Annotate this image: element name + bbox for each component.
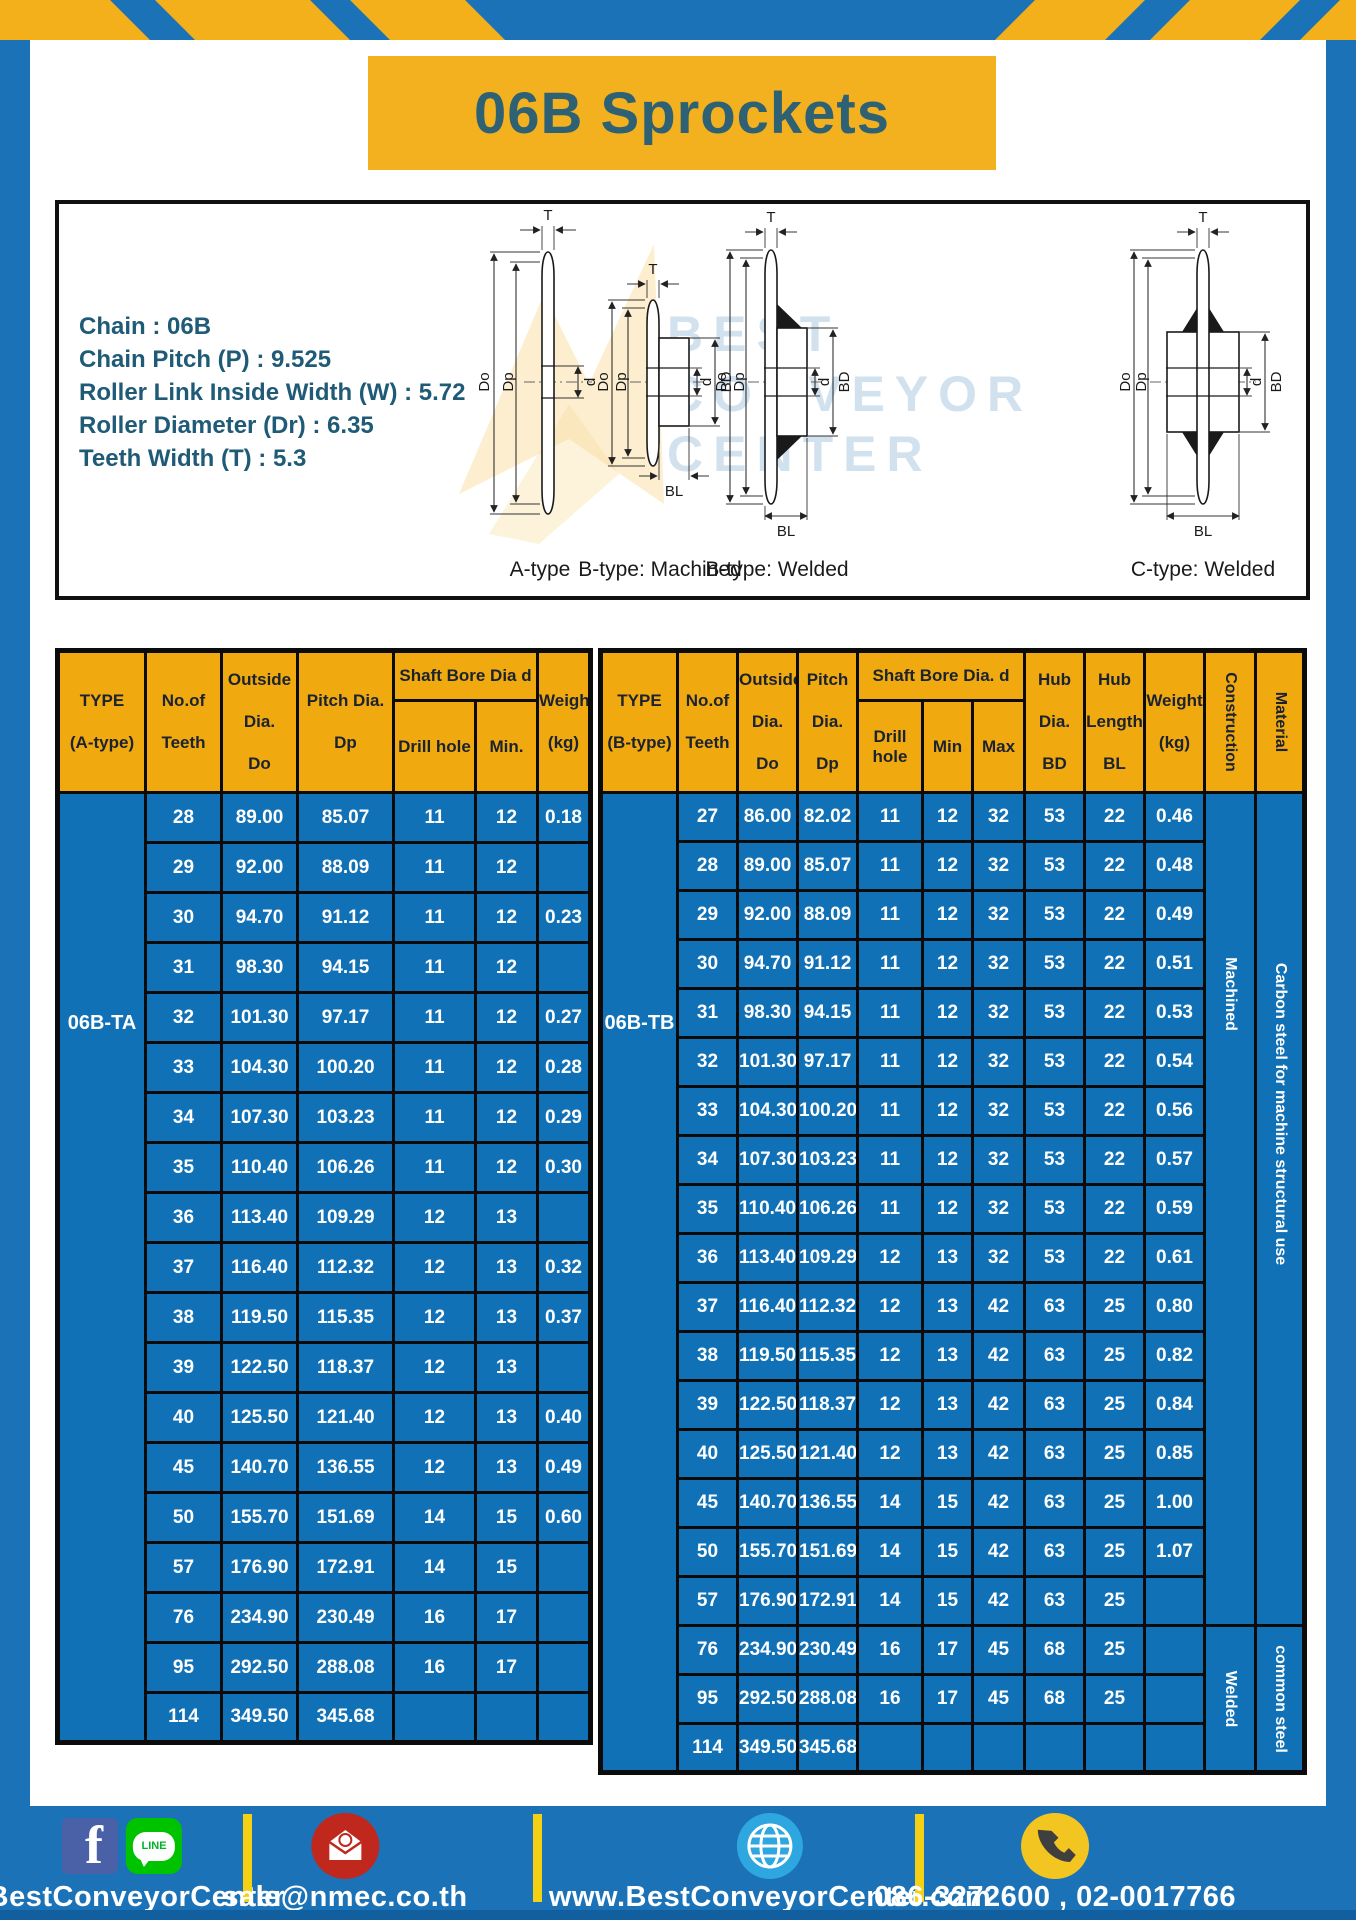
table-cell: 11 [858, 1185, 923, 1234]
table-row: 114349.50345.68 [601, 1724, 1305, 1773]
table-cell: 119.50 [222, 1293, 298, 1343]
table-cell: 25 [1085, 1626, 1145, 1675]
table-cell: 113.40 [222, 1193, 298, 1243]
table-cell: 16 [394, 1643, 476, 1693]
table-cell: 12 [923, 793, 973, 842]
table-cell: 12 [858, 1381, 923, 1430]
table-cell: 53 [1025, 842, 1085, 891]
table-row: 3094.7091.1211123253220.51 [601, 940, 1305, 989]
table-cell: 13 [476, 1343, 538, 1393]
table-cell: 14 [394, 1543, 476, 1593]
table-cell: 76 [678, 1626, 738, 1675]
table-cell: 22 [1085, 1234, 1145, 1283]
table-cell: 13 [923, 1332, 973, 1381]
table-cell: 172.91 [298, 1543, 394, 1593]
dim-label-d: d [1248, 378, 1265, 386]
table-row: 3198.3094.1511123253220.53 [601, 989, 1305, 1038]
table-cell: 12 [858, 1283, 923, 1332]
table-cell: 25 [1085, 1577, 1145, 1626]
table-row: 76234.90230.491617456825Weldedcommon ste… [601, 1626, 1305, 1675]
table-row: 06B-TB2786.0082.0211123253220.46Machined… [601, 793, 1305, 842]
table-cell: 12 [923, 1038, 973, 1087]
table-row: 38119.50115.3512134263250.82 [601, 1332, 1305, 1381]
table-cell: 12 [858, 1234, 923, 1283]
facebook-icon[interactable]: f [62, 1818, 118, 1874]
table-cell: 53 [1025, 989, 1085, 1038]
spec-line: Roller Diameter (Dr) : 6.35 [79, 409, 465, 442]
sprocket-drawings: Do Dp d T A-type [440, 204, 1302, 592]
dim-label-bl: BL [1194, 523, 1212, 540]
table-cell: 42 [973, 1381, 1025, 1430]
table-cell: 106.26 [298, 1143, 394, 1193]
table-row: 33104.30100.2011123253220.56 [601, 1087, 1305, 1136]
dim-label-do: Do [1117, 372, 1134, 391]
table-row: 2992.0088.0911123253220.49 [601, 891, 1305, 940]
table-cell: 349.50 [222, 1693, 298, 1743]
table-row: 40125.50121.4012134263250.85 [601, 1430, 1305, 1479]
table-cell: 116.40 [738, 1283, 798, 1332]
email-icon[interactable] [309, 1812, 381, 1880]
table-cell: 37 [146, 1243, 222, 1293]
table-cell: 32 [973, 1087, 1025, 1136]
table-cell: 140.70 [222, 1443, 298, 1493]
table-cell: 14 [394, 1493, 476, 1543]
table-cell: 13 [476, 1293, 538, 1343]
table-cell: 45 [678, 1479, 738, 1528]
table-cell: 42 [973, 1332, 1025, 1381]
table-cell: 16 [858, 1675, 923, 1724]
footer-bottom-strip [0, 1910, 1356, 1920]
table-cell: 0.49 [1145, 891, 1205, 940]
drawing-b-type-machined: Do Dp d BD T BL B-type: Ma [578, 261, 741, 581]
table-cell: 11 [858, 940, 923, 989]
table-cell: 176.90 [222, 1543, 298, 1593]
table-cell: 32 [973, 891, 1025, 940]
table-cell: 15 [923, 1479, 973, 1528]
table-cell [538, 1593, 591, 1643]
construction-cell: Welded [1205, 1626, 1256, 1773]
table-cell: 11 [394, 893, 476, 943]
table-cell: 30 [678, 940, 738, 989]
table-cell: 103.23 [798, 1136, 858, 1185]
table-cell: 292.50 [738, 1675, 798, 1724]
table-cell: 155.70 [738, 1528, 798, 1577]
table-cell [923, 1724, 973, 1773]
table-cell: 53 [1025, 891, 1085, 940]
b-type-table: TYPE (B-type) No.of Teeth Outside Dia. D… [598, 648, 1307, 1775]
dim-label-do: Do [713, 372, 730, 391]
table-cell: 15 [923, 1577, 973, 1626]
table-cell: 32 [973, 1234, 1025, 1283]
table-cell: 106.26 [798, 1185, 858, 1234]
page: 06B Sprockets BEST CONVEYOR CENTER Chain… [0, 0, 1356, 1920]
table-cell: 11 [394, 793, 476, 843]
table-cell: 0.82 [1145, 1332, 1205, 1381]
table-cell: 11 [394, 1143, 476, 1193]
table-cell: 0.40 [538, 1393, 591, 1443]
table-cell: 98.30 [738, 989, 798, 1038]
table-cell: 91.12 [298, 893, 394, 943]
table-cell: 114 [146, 1693, 222, 1743]
drawing-b-type-welded: Do Dp d BD T BL B-type: Welded [705, 209, 853, 581]
table-cell: 63 [1025, 1528, 1085, 1577]
table-cell: 12 [394, 1243, 476, 1293]
table-cell: 100.20 [298, 1043, 394, 1093]
table-cell: 151.69 [798, 1528, 858, 1577]
dim-label-t: T [648, 261, 657, 278]
table-cell: 34 [678, 1136, 738, 1185]
table-cell [858, 1724, 923, 1773]
table-cell: 11 [858, 989, 923, 1038]
table-cell: 109.29 [798, 1234, 858, 1283]
table-cell: 11 [394, 1043, 476, 1093]
table-cell: 57 [678, 1577, 738, 1626]
col-header-shaft-bore-group: Shaft Bore Dia. d [858, 651, 1025, 701]
table-cell: 0.32 [538, 1243, 591, 1293]
table-cell: 140.70 [738, 1479, 798, 1528]
table-row: 36113.40109.2912133253220.61 [601, 1234, 1305, 1283]
table-cell [538, 1193, 591, 1243]
dim-label-dp: Dp [731, 372, 748, 391]
spec-line: Chain Pitch (P) : 9.525 [79, 343, 465, 376]
table-cell: 12 [858, 1332, 923, 1381]
table-cell [538, 1693, 591, 1743]
table-row: 34107.30103.2311123253220.57 [601, 1136, 1305, 1185]
table-cell: 12 [476, 993, 538, 1043]
table-cell: 0.29 [538, 1093, 591, 1143]
drawing-c-type-welded: Do Dp d BD T BL C-type: Welded [1117, 209, 1285, 581]
a-type-table: TYPE (A-type) No.of Teeth Outside Dia. D… [55, 648, 593, 1745]
dim-label-bd: BD [1268, 371, 1285, 392]
table-cell: 17 [923, 1675, 973, 1724]
footer-divider [533, 1814, 542, 1902]
dim-label-dp: Dp [1133, 372, 1150, 391]
table-cell: 63 [1025, 1283, 1085, 1332]
table-cell [538, 1643, 591, 1693]
table-cell: 12 [476, 1143, 538, 1193]
col-header-shaft-bore-group: Shaft Bore Dia d [394, 651, 538, 701]
table-cell: 50 [146, 1493, 222, 1543]
footer: f LINE @BestConveyorCenter sale@nmec.co.… [0, 1806, 1356, 1920]
phone-icon[interactable] [1019, 1812, 1091, 1880]
table-cell: 95 [146, 1643, 222, 1693]
table-cell: 14 [858, 1479, 923, 1528]
table-row: 95292.50288.081617456825 [601, 1675, 1305, 1724]
table-cell: 11 [858, 842, 923, 891]
table-cell: 0.80 [1145, 1283, 1205, 1332]
table-cell: 17 [923, 1626, 973, 1675]
table-cell: 63 [1025, 1479, 1085, 1528]
table-cell: 12 [476, 943, 538, 993]
col-header-outside-dia: Outside Dia. Do [738, 651, 798, 793]
table-cell: 42 [973, 1577, 1025, 1626]
table-cell: 25 [1085, 1528, 1145, 1577]
table-cell: 13 [476, 1193, 538, 1243]
table-cell: 0.51 [1145, 940, 1205, 989]
table-cell [1145, 1675, 1205, 1724]
table-row: 57176.90172.911415426325 [601, 1577, 1305, 1626]
table-cell: 36 [678, 1234, 738, 1283]
table-cell: 82.02 [798, 793, 858, 842]
table-cell [538, 843, 591, 893]
table-cell: 13 [923, 1381, 973, 1430]
table-cell: 22 [1085, 989, 1145, 1038]
table-cell: 176.90 [738, 1577, 798, 1626]
table-cell: 34 [146, 1093, 222, 1143]
table-cell: 12 [394, 1343, 476, 1393]
dim-label-dp: Dp [613, 372, 630, 391]
table-cell: 16 [858, 1626, 923, 1675]
top-decoration-bar [0, 0, 1356, 40]
table-cell: 97.17 [298, 993, 394, 1043]
figure-caption: A-type [510, 558, 571, 581]
footer-phone-section[interactable]: 086-3272600 , 02-0017766 [874, 1812, 1236, 1914]
line-icon[interactable]: LINE [126, 1818, 182, 1874]
table-cell: 38 [678, 1332, 738, 1381]
dim-label-dp: Dp [500, 372, 517, 391]
table-cell: 22 [1085, 1038, 1145, 1087]
footer-email-section[interactable]: sale@nmec.co.th [222, 1812, 467, 1914]
table-cell: 0.54 [1145, 1038, 1205, 1087]
table-cell: 172.91 [798, 1577, 858, 1626]
table-cell: 42 [973, 1479, 1025, 1528]
b-type-table-body: 06B-TB2786.0082.0211123253220.46Machined… [601, 793, 1305, 1773]
table-cell: 11 [858, 891, 923, 940]
table-cell: 104.30 [222, 1043, 298, 1093]
stripe-decoration [155, 0, 350, 40]
table-cell: 89.00 [222, 793, 298, 843]
table-cell: 94.15 [798, 989, 858, 1038]
col-header-min: Min. [476, 701, 538, 793]
table-cell: 28 [146, 793, 222, 843]
table-cell: 42 [973, 1283, 1025, 1332]
table-cell: 11 [858, 1136, 923, 1185]
table-cell: 151.69 [298, 1493, 394, 1543]
page-title: 06B Sprockets [474, 80, 890, 147]
table-cell: 107.30 [222, 1093, 298, 1143]
table-cell: 121.40 [798, 1430, 858, 1479]
spec-line: Chain : 06B [79, 310, 465, 343]
table-cell: 288.08 [798, 1675, 858, 1724]
table-cell: 76 [146, 1593, 222, 1643]
table-cell [476, 1693, 538, 1743]
drawing-a-type: Do Dp d T A-type [476, 207, 599, 581]
table-cell: 53 [1025, 1234, 1085, 1283]
construction-cell: Machined [1205, 793, 1256, 1626]
table-cell: 53 [1025, 1185, 1085, 1234]
table-cell: 68 [1025, 1675, 1085, 1724]
spec-panel: BEST CONVEYOR CENTER Chain : 06B Chain P… [55, 200, 1310, 600]
a-type-table-body: 06B-TA2889.0085.0711120.182992.0088.0911… [58, 793, 591, 1743]
table-cell: 63 [1025, 1332, 1085, 1381]
table-cell: 12 [476, 1093, 538, 1143]
table-cell: 0.28 [538, 1043, 591, 1093]
table-cell: 12 [476, 793, 538, 843]
table-cell: 349.50 [738, 1724, 798, 1773]
table-cell: 13 [923, 1283, 973, 1332]
table-cell: 29 [146, 843, 222, 893]
col-header-weight: Weight (kg) [1145, 651, 1205, 793]
table-cell: 42 [973, 1528, 1025, 1577]
table-row: 50155.70151.6914154263251.07 [601, 1528, 1305, 1577]
table-cell: 12 [394, 1293, 476, 1343]
table-cell: 1.07 [1145, 1528, 1205, 1577]
table-cell: 155.70 [222, 1493, 298, 1543]
material-cell: Carbon steel for machine structural use [1256, 793, 1305, 1626]
table-cell: 25 [1085, 1332, 1145, 1381]
table-cell: 12 [394, 1193, 476, 1243]
col-header-pitch-dia: Pitch Dia. Dp [298, 651, 394, 793]
table-cell: 11 [858, 1087, 923, 1136]
col-header-weight: Weight (kg) [538, 651, 591, 793]
table-cell: 12 [923, 891, 973, 940]
table-cell [538, 1543, 591, 1593]
table-cell: 33 [146, 1043, 222, 1093]
table-cell: 22 [1085, 842, 1145, 891]
table-row: 32101.3097.1711123253220.54 [601, 1038, 1305, 1087]
table-cell: 1.00 [1145, 1479, 1205, 1528]
table-cell: 92.00 [738, 891, 798, 940]
col-header-drill-hole: Drill hole [394, 701, 476, 793]
table-cell: 39 [146, 1343, 222, 1393]
dim-label-bd: BD [836, 371, 853, 392]
table-cell [538, 943, 591, 993]
table-cell: 91.12 [798, 940, 858, 989]
table-cell: 12 [923, 1136, 973, 1185]
table-cell: 11 [858, 1038, 923, 1087]
table-cell: 32 [678, 1038, 738, 1087]
col-header-min: Min [923, 701, 973, 793]
table-cell: 12 [476, 843, 538, 893]
table-cell: 234.90 [222, 1593, 298, 1643]
table-cell: 104.30 [738, 1087, 798, 1136]
table-cell: 0.53 [1145, 989, 1205, 1038]
table-cell: 122.50 [222, 1343, 298, 1393]
table-cell: 12 [476, 893, 538, 943]
chain-specs: Chain : 06B Chain Pitch (P) : 9.525 Roll… [79, 310, 465, 475]
table-cell: 110.40 [222, 1143, 298, 1193]
stripe-decoration [0, 0, 150, 40]
type-cell: 06B-TA [58, 793, 146, 1743]
table-cell: 68 [1025, 1626, 1085, 1675]
table-cell: 0.18 [538, 793, 591, 843]
line-bubble: LINE [133, 1832, 175, 1861]
stripe-decoration [350, 0, 505, 40]
table-cell: 38 [146, 1293, 222, 1343]
table-cell: 92.00 [222, 843, 298, 893]
table-cell: 0.57 [1145, 1136, 1205, 1185]
table-row: 45140.70136.5514154263251.00 [601, 1479, 1305, 1528]
spec-line: Roller Link Inside Width (W) : 5.72 [79, 376, 465, 409]
col-header-outside-dia: Outside Dia. Do [222, 651, 298, 793]
table-cell: 12 [923, 1185, 973, 1234]
table-cell: 94.70 [222, 893, 298, 943]
col-header-hub-length: Hub Length BL [1085, 651, 1145, 793]
table-cell: 0.85 [1145, 1430, 1205, 1479]
dim-label-bl: BL [665, 483, 683, 500]
table-cell: 119.50 [738, 1332, 798, 1381]
table-cell: 12 [923, 989, 973, 1038]
table-cell: 89.00 [738, 842, 798, 891]
table-cell: 14 [858, 1577, 923, 1626]
table-cell: 53 [1025, 1136, 1085, 1185]
table-cell: 16 [394, 1593, 476, 1643]
table-cell: 88.09 [798, 891, 858, 940]
table-cell: 63 [1025, 1577, 1085, 1626]
table-cell: 22 [1085, 1185, 1145, 1234]
table-cell: 288.08 [298, 1643, 394, 1693]
table-cell: 22 [1085, 891, 1145, 940]
table-row: 39122.50118.3712134263250.84 [601, 1381, 1305, 1430]
table-cell: 32 [973, 989, 1025, 1038]
table-cell: 0.84 [1145, 1381, 1205, 1430]
globe-icon[interactable] [735, 1812, 805, 1880]
material-cell: common steel [1256, 1626, 1305, 1773]
table-cell: 33 [678, 1087, 738, 1136]
table-cell: 103.23 [298, 1093, 394, 1143]
table-cell: 85.07 [798, 842, 858, 891]
table-cell: 125.50 [738, 1430, 798, 1479]
table-cell: 345.68 [798, 1724, 858, 1773]
table-cell: 85.07 [298, 793, 394, 843]
table-cell: 22 [1085, 940, 1145, 989]
table-cell: 0.46 [1145, 793, 1205, 842]
col-header-drill-hole: Drill hole [858, 701, 923, 793]
table-cell [1085, 1724, 1145, 1773]
table-row: 37116.40112.3212134263250.80 [601, 1283, 1305, 1332]
table-cell: 39 [678, 1381, 738, 1430]
dim-label-t: T [1198, 209, 1207, 226]
table-cell: 292.50 [222, 1643, 298, 1693]
table-cell: 0.30 [538, 1143, 591, 1193]
table-cell: 113.40 [738, 1234, 798, 1283]
figure-caption: B-type: Welded [705, 558, 848, 581]
table-cell: 50 [678, 1528, 738, 1577]
table-cell: 42 [973, 1430, 1025, 1479]
dim-label-d: d [816, 378, 833, 386]
table-cell: 0.27 [538, 993, 591, 1043]
table-cell: 110.40 [738, 1185, 798, 1234]
table-cell: 40 [678, 1430, 738, 1479]
table-cell: 109.29 [298, 1193, 394, 1243]
table-cell: 230.49 [798, 1626, 858, 1675]
table-cell: 98.30 [222, 943, 298, 993]
table-cell: 22 [1085, 1136, 1145, 1185]
table-cell: 45 [973, 1675, 1025, 1724]
table-cell: 25 [1085, 1283, 1145, 1332]
stripe-decoration [1300, 0, 1356, 40]
table-cell: 32 [973, 1185, 1025, 1234]
table-cell: 13 [476, 1443, 538, 1493]
table-cell [1145, 1724, 1205, 1773]
table-cell: 0.49 [538, 1443, 591, 1493]
table-cell: 88.09 [298, 843, 394, 893]
table-cell: 13 [476, 1393, 538, 1443]
figure-caption: C-type: Welded [1131, 558, 1275, 581]
table-cell: 107.30 [738, 1136, 798, 1185]
table-cell: 12 [394, 1443, 476, 1493]
table-cell: 234.90 [738, 1626, 798, 1675]
dim-label-do: Do [476, 372, 493, 391]
table-cell: 12 [923, 940, 973, 989]
col-header-type: TYPE (B-type) [601, 651, 678, 793]
table-cell: 32 [146, 993, 222, 1043]
table-cell: 11 [394, 1093, 476, 1143]
col-header-material: Material [1256, 651, 1305, 793]
col-header-teeth: No.of Teeth [146, 651, 222, 793]
table-cell: 31 [146, 943, 222, 993]
table-cell: 12 [923, 1087, 973, 1136]
